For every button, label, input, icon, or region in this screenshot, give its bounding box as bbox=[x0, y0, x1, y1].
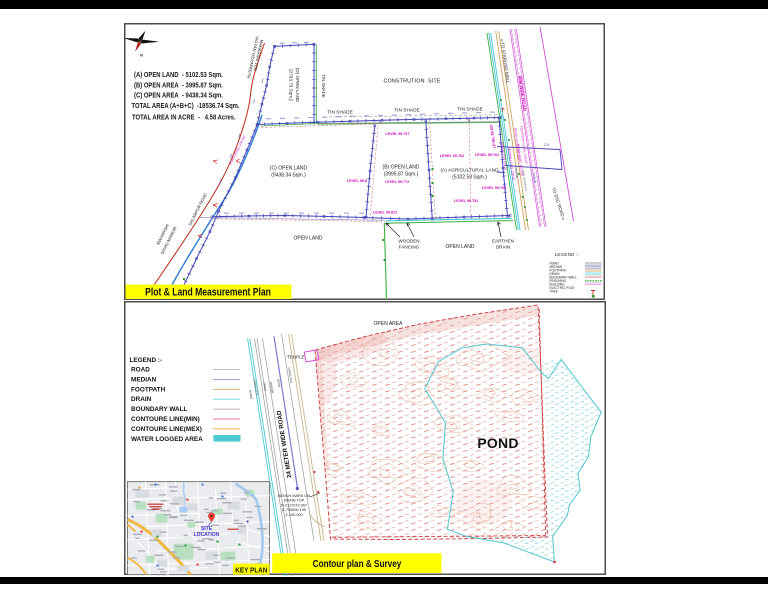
svg-text:LEVEL 99.762: LEVEL 99.762 bbox=[440, 154, 464, 158]
svg-text:EARTHEN: EARTHEN bbox=[492, 239, 514, 244]
svg-text:(C) OPEN AREA - 9438.34 Sqm.: (C) OPEN AREA - 9438.34 Sqm. bbox=[134, 92, 223, 100]
svg-text:TIN SHADE: TIN SHADE bbox=[394, 108, 420, 114]
svg-text:(5102.53 Sqm.): (5102.53 Sqm.) bbox=[452, 175, 487, 181]
svg-text:TOTAL AREA IN ACRE - 4.58 A: TOTAL AREA IN ACRE - 4.58 Acres. bbox=[132, 114, 236, 122]
svg-text:TOTAL AREA (A+B+C) -18536.74: TOTAL AREA (A+B+C) -18536.74 Sqm. bbox=[132, 103, 240, 111]
svg-text:Contour plan & Survey: Contour plan & Survey bbox=[313, 557, 402, 569]
svg-text:LEVEL 99.8: LEVEL 99.8 bbox=[347, 179, 367, 183]
svg-text:TIN SHADE: TIN SHADE bbox=[321, 74, 326, 97]
svg-text:(3995.87 Sqm.): (3995.87 Sqm.) bbox=[384, 172, 419, 178]
svg-text:LEVEL 99.751: LEVEL 99.751 bbox=[454, 199, 478, 203]
svg-text:DRAIN: DRAIN bbox=[131, 396, 152, 403]
svg-text:KEY PLAN: KEY PLAN bbox=[235, 567, 267, 575]
svg-text:WATER LOGGED AREA: WATER LOGGED AREA bbox=[131, 436, 203, 443]
svg-text:LEVEL 99.707: LEVEL 99.707 bbox=[385, 132, 409, 136]
svg-text:(A) AGRICULTURAL LAND: (A) AGRICULTURAL LAND bbox=[440, 168, 499, 174]
svg-text:(C) OPEN LAND: (C) OPEN LAND bbox=[270, 166, 308, 172]
svg-text:N-2117972.967: N-2117972.967 bbox=[281, 503, 307, 507]
svg-text:OPEN AREA: OPEN AREA bbox=[374, 321, 404, 327]
svg-text:OPEN LAND: OPEN LAND bbox=[446, 244, 475, 250]
svg-text:CONTOURE LINE(MIN): CONTOURE LINE(MIN) bbox=[131, 416, 200, 423]
svg-text:(B) OPEN LAND: (B) OPEN LAND bbox=[383, 165, 420, 171]
svg-text:BOUNDARY WALL: BOUNDARY WALL bbox=[131, 406, 188, 413]
svg-text:CONTOURE LINE(MEX): CONTOURE LINE(MEX) bbox=[131, 426, 202, 433]
svg-text:[2793.73 Sqm.]: [2793.73 Sqm.] bbox=[289, 69, 294, 100]
svg-text:FOOTPATH: FOOTPATH bbox=[131, 386, 166, 393]
svg-text:N: N bbox=[140, 53, 143, 58]
svg-text:(A) OPEN LAND - 5102.53 Sqm.: (A) OPEN LAND - 5102.53 Sqm. bbox=[134, 72, 223, 80]
svg-text:LEVEL 99.704: LEVEL 99.704 bbox=[482, 186, 507, 190]
svg-text:BENCH MARK ON: BENCH MARK ON bbox=[278, 494, 310, 498]
svg-text:WOODEN: WOODEN bbox=[398, 239, 419, 244]
svg-text:POND: POND bbox=[477, 435, 518, 451]
svg-text:LEVEL 99.812: LEVEL 99.812 bbox=[373, 211, 397, 215]
svg-text:(D) OPEN LAND: (D) OPEN LAND bbox=[295, 68, 300, 103]
svg-text:LEGEND :-: LEGEND :- bbox=[555, 252, 580, 257]
svg-text:LEVEL 99.772: LEVEL 99.772 bbox=[385, 180, 409, 184]
svg-text:FANCING: FANCING bbox=[399, 245, 420, 250]
svg-text:DRAIN TOP: DRAIN TOP bbox=[284, 499, 305, 503]
svg-text:TIN SHADE: TIN SHADE bbox=[457, 107, 483, 113]
svg-text:SITE: SITE bbox=[201, 526, 213, 532]
svg-text:ROAD: ROAD bbox=[131, 367, 150, 374]
svg-text:MEDIAN: MEDIAN bbox=[131, 376, 157, 383]
svg-text:Z-100.000: Z-100.000 bbox=[285, 513, 302, 517]
svg-text:LOCATION: LOCATION bbox=[194, 532, 220, 538]
svg-text:Plot & Land Measurement Plan: Plot & Land Measurement Plan bbox=[145, 287, 271, 299]
svg-text:OPEN LAND: OPEN LAND bbox=[294, 236, 323, 242]
svg-text:TREE: TREE bbox=[550, 289, 559, 293]
svg-text:E-735690.199: E-735690.199 bbox=[282, 508, 306, 512]
svg-text:LEVEL 99.762: LEVEL 99.762 bbox=[475, 153, 499, 157]
svg-text:LEGEND :-: LEGEND :- bbox=[130, 357, 163, 364]
svg-text:TIN SHADE: TIN SHADE bbox=[327, 110, 353, 116]
svg-text:CONSTRUTION SITE: CONSTRUTION SITE bbox=[383, 79, 440, 85]
svg-text:DRAIN: DRAIN bbox=[496, 245, 510, 250]
svg-text:(9438.34 Sqm.): (9438.34 Sqm.) bbox=[271, 173, 306, 179]
svg-text:(B) OPEN AREA - 3995.87 Sqm.: (B) OPEN AREA - 3995.87 Sqm. bbox=[134, 82, 223, 90]
svg-text:2.5: 2.5 bbox=[544, 143, 549, 147]
